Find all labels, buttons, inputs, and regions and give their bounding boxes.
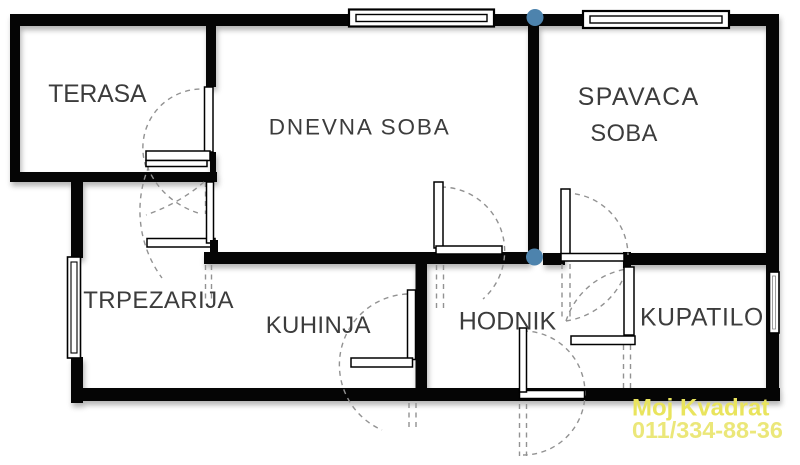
svg-text:011/334-88-36: 011/334-88-36 [632,417,783,443]
svg-text:KUHINJA: KUHINJA [266,312,371,339]
svg-text:DNEVNA SOBA: DNEVNA SOBA [269,114,449,139]
svg-text:TRPEZARIJA: TRPEZARIJA [83,287,233,314]
svg-text:TERASA: TERASA [48,81,147,108]
svg-text:SOBA: SOBA [590,121,657,147]
svg-text:KUPATILO: KUPATILO [640,305,763,332]
svg-text:HODNIK: HODNIK [459,308,557,336]
